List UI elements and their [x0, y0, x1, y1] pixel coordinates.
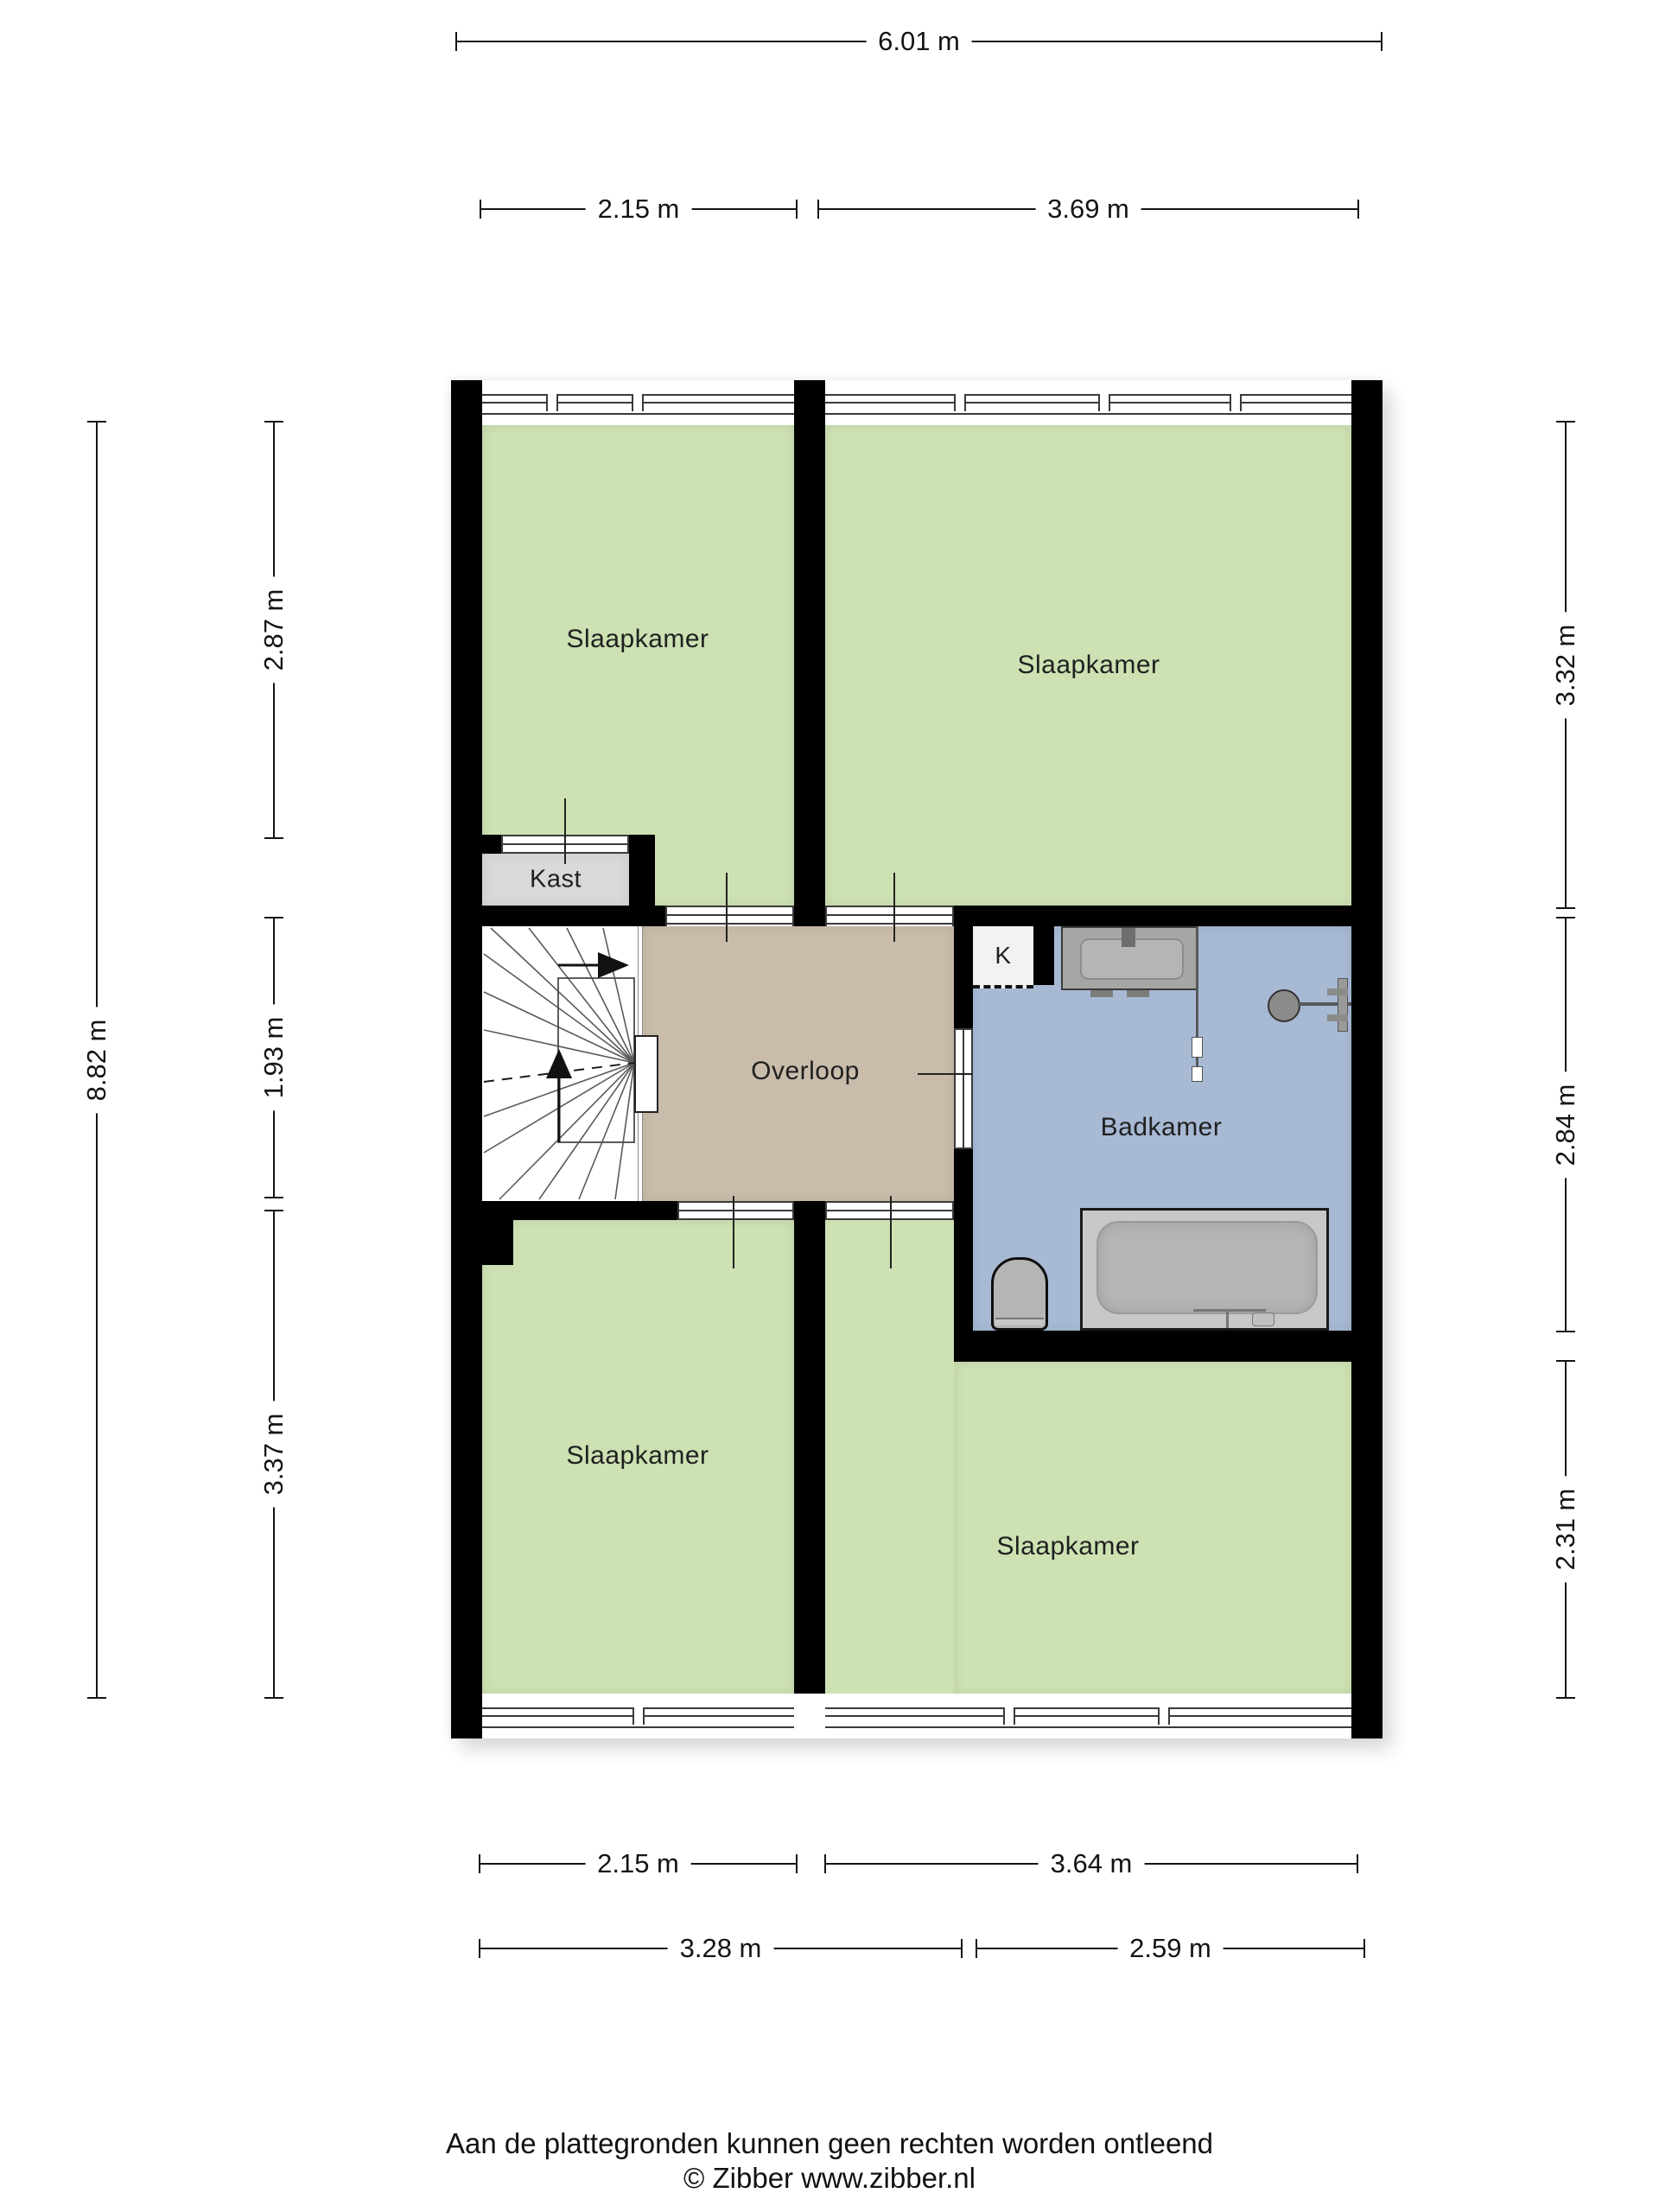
sink-faucet-icon — [1122, 928, 1135, 947]
wall-divider-bottom-bedrooms — [794, 1201, 825, 1694]
label-bedroom-bottom-right: Slaapkamer — [996, 1532, 1139, 1561]
dimension-right-top: 3.32 m — [1550, 421, 1581, 909]
room-bedroom-bottom-right — [954, 1362, 1351, 1694]
vanity-foot — [1127, 990, 1149, 997]
window-glazing — [825, 394, 1351, 415]
dimension-label: 8.82 m — [81, 1007, 112, 1113]
footer-disclaimer: Aan de plattegronden kunnen geen rechten… — [0, 2127, 1659, 2160]
window-bottom-right-bedroom — [825, 1694, 1351, 1738]
dimension-label: 3.69 m — [1035, 194, 1141, 225]
dimension-label: 2.15 m — [586, 194, 692, 225]
dimension-label: 3.64 m — [1039, 1848, 1145, 1879]
wall-kast-stub — [629, 835, 655, 906]
toilet-icon — [991, 1257, 1048, 1331]
door-hall-to-bedroom-top-left — [665, 906, 794, 926]
wall-hall-top-left — [482, 906, 665, 926]
dimension-left-bottom: 3.37 m — [258, 1210, 289, 1699]
floorplan: Slaapkamer Slaapkamer Kast Overloop K Ba… — [451, 380, 1382, 1738]
wall-exterior-right — [1351, 380, 1382, 1738]
window-mullion — [632, 394, 644, 411]
dimension-bottom-row2-right: 2.59 m — [976, 1933, 1365, 1964]
stairs-icon — [482, 926, 638, 1201]
floorplan-page: Slaapkamer Slaapkamer Kast Overloop K Ba… — [0, 0, 1659, 2212]
bathtub-icon — [1080, 1208, 1329, 1331]
stair-door-leaf — [634, 1035, 658, 1113]
room-bedroom-top-left — [482, 425, 794, 906]
vanity-foot — [1090, 990, 1113, 997]
glass-screen-handle — [1192, 1037, 1203, 1058]
dimension-label: 3.28 m — [668, 1933, 774, 1964]
dimension-right-middle: 2.84 m — [1550, 917, 1581, 1332]
door-hall-to-bedroom-bottom-left — [677, 1201, 794, 1220]
bathtub-basin — [1096, 1221, 1318, 1314]
shower-valve-handle — [1327, 988, 1348, 995]
wall-hall-top-mid — [794, 906, 825, 926]
window-mullion — [1230, 394, 1242, 411]
dimension-label: 3.37 m — [258, 1402, 289, 1508]
dimension-top-left-width: 2.15 m — [480, 194, 798, 225]
dimension-total-width: 6.01 m — [455, 26, 1382, 57]
dimension-total-height: 8.82 m — [81, 421, 112, 1699]
window-mullion — [632, 1707, 645, 1725]
shower-valve-handle — [1327, 1014, 1348, 1021]
wall-bathroom-top — [954, 906, 1351, 926]
label-bedroom-bottom-left: Slaapkamer — [566, 1441, 709, 1471]
wall-hall-bottom-left — [482, 1201, 677, 1220]
wall-bathroom-bottom — [954, 1331, 1351, 1362]
window-mullion — [546, 394, 558, 411]
window-mullion — [1158, 1707, 1170, 1725]
window-mullion — [1098, 394, 1110, 411]
door-swing-tick — [918, 1073, 973, 1075]
footer-copyright: © Zibber www.zibber.nl — [0, 2162, 1659, 2195]
dimension-top-right-width: 3.69 m — [817, 194, 1359, 225]
window-glazing — [825, 1707, 1351, 1728]
shower-head-icon — [1268, 989, 1300, 1022]
label-bedroom-top-left: Slaapkamer — [566, 625, 709, 654]
dimension-bottom-row2-left: 3.28 m — [479, 1933, 963, 1964]
dimension-left-top: 2.87 m — [258, 421, 289, 839]
shower-valve-icon — [1338, 978, 1348, 1032]
dimension-label: 2.15 m — [585, 1848, 691, 1879]
dimension-label: 2.31 m — [1550, 1477, 1581, 1583]
dimension-label: 2.87 m — [258, 577, 289, 683]
room-bedroom-bottom-right-upper — [825, 1220, 954, 1694]
dimension-label: 2.84 m — [1550, 1071, 1581, 1178]
wall-kast-jamb — [482, 835, 501, 854]
window-mullion — [1003, 1707, 1015, 1725]
label-badkamer: Badkamer — [1101, 1113, 1223, 1142]
dimension-bottom-left-width: 2.15 m — [479, 1848, 798, 1879]
dimension-label: 1.93 m — [258, 1005, 289, 1111]
door-swing-tick — [733, 1196, 734, 1268]
door-swing-tick — [893, 873, 895, 942]
window-top-left-bedroom — [482, 380, 794, 425]
door-hall-to-bathroom — [954, 1028, 973, 1149]
label-k-closet: K — [995, 942, 1011, 969]
label-bedroom-top-right: Slaapkamer — [1017, 651, 1160, 680]
door-swing-tick — [564, 798, 566, 864]
window-mullion — [954, 394, 966, 411]
wall-k-closet-stub — [1033, 926, 1054, 985]
wall-bathroom-left-upper — [954, 926, 973, 1028]
glass-screen-handle — [1192, 1066, 1203, 1082]
label-kast: Kast — [530, 866, 582, 894]
dimension-label: 6.01 m — [866, 26, 972, 57]
dimension-bottom-right-width: 3.64 m — [824, 1848, 1358, 1879]
bathtub-faucet-icon — [1193, 1309, 1266, 1312]
door-swing-tick — [890, 1196, 892, 1268]
dimension-label: 2.59 m — [1117, 1933, 1224, 1964]
wall-divider-top-bedrooms — [794, 380, 825, 906]
dimension-left-middle: 1.93 m — [258, 917, 289, 1198]
wall-exterior-left — [451, 380, 482, 1738]
dimension-label: 3.32 m — [1550, 612, 1581, 718]
door-swing-tick — [726, 873, 728, 942]
toilet-base — [995, 1318, 1044, 1325]
door-hall-to-bedroom-top-right — [825, 906, 954, 926]
wall-notch-bottom-left — [482, 1220, 513, 1265]
bathtub-faucet-icon — [1226, 1309, 1229, 1328]
window-bottom-left-bedroom — [482, 1694, 794, 1738]
sink-vanity-icon — [1061, 926, 1198, 990]
window-top-right-bedroom — [825, 380, 1351, 425]
bathtub-drain — [1252, 1313, 1274, 1326]
dimension-right-bottom: 2.31 m — [1550, 1360, 1581, 1699]
label-overloop: Overloop — [751, 1057, 860, 1086]
